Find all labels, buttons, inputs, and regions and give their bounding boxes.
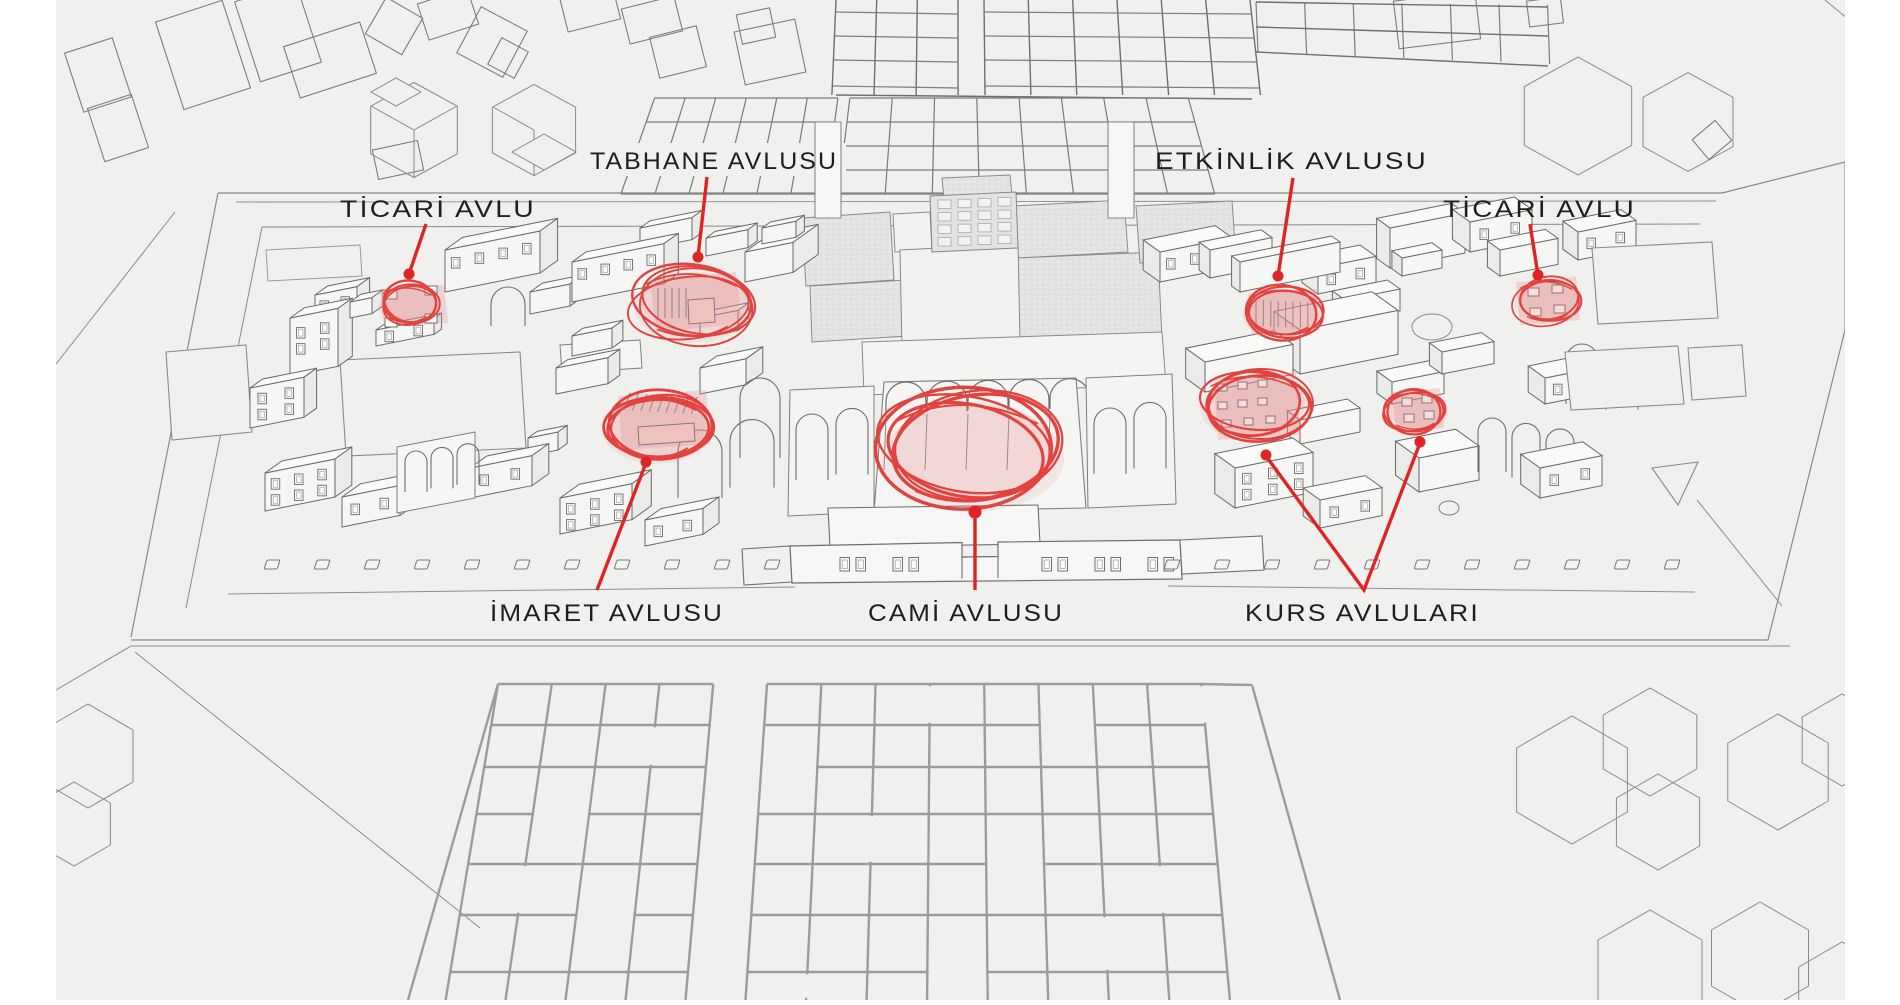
svg-text:ETKİNLİK AVLUSU: ETKİNLİK AVLUSU [1155, 148, 1428, 175]
svg-text:TİCARİ AVLU: TİCARİ AVLU [1443, 196, 1636, 223]
svg-text:TABHANE AVLUSU: TABHANE AVLUSU [590, 148, 838, 175]
svg-text:İMARET AVLUSU: İMARET AVLUSU [490, 600, 724, 627]
svg-text:KURS AVLULARI: KURS AVLULARI [1245, 600, 1480, 627]
svg-text:CAMİ AVLUSU: CAMİ AVLUSU [868, 600, 1064, 627]
svg-text:TİCARİ AVLU: TİCARİ AVLU [340, 196, 536, 223]
